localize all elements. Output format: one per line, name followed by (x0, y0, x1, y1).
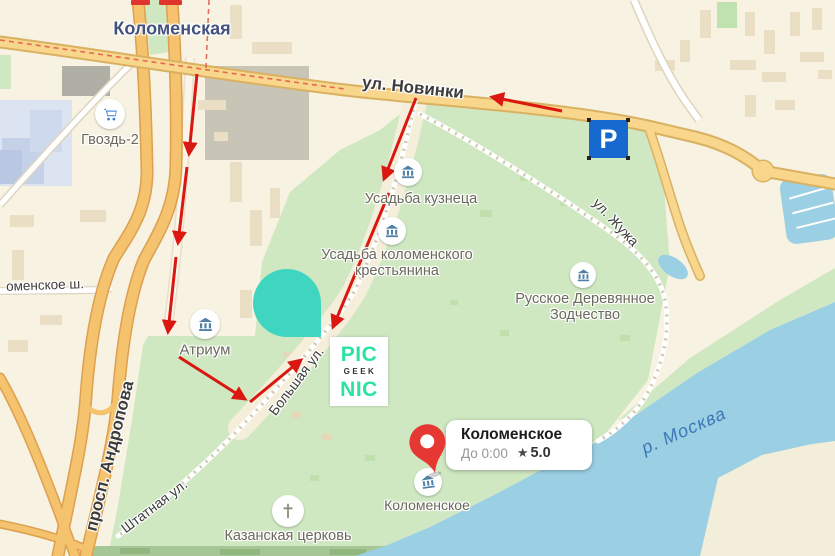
museum-icon[interactable] (394, 158, 422, 186)
rating-value: 5.0 (530, 445, 550, 461)
callout-hours: До 0:00 (461, 446, 508, 461)
logo-text-top: PIC (341, 344, 378, 365)
logo-text-bottom: NIC (340, 379, 378, 400)
church-cross-icon[interactable] (272, 495, 304, 527)
poi-label-usadba-krestyanina[interactable]: Усадьба коломенского крестьянина (300, 247, 495, 279)
callout-rating: ★ 5.0 (517, 445, 551, 461)
map-viewport[interactable]: Коломенская ул. Новинки просп. Андропова… (0, 0, 835, 556)
poi-label-kolomenskoe[interactable]: Коломенское (384, 497, 470, 513)
selection-handle[interactable] (587, 118, 591, 122)
parking-icon[interactable]: P (589, 120, 628, 158)
metro-station-label[interactable]: Коломенская (113, 19, 230, 40)
callout-title[interactable]: Коломенское (461, 425, 584, 444)
selection-handle[interactable] (587, 156, 591, 160)
museum-icon[interactable] (190, 309, 220, 339)
poi-label-russkoe-zodchestvo[interactable]: Русское Деревянное Зодчество (498, 291, 673, 323)
poi-label-kazanskaya[interactable]: Казанская церковь (224, 528, 351, 544)
selection-handle[interactable] (626, 118, 630, 122)
museum-icon[interactable] (378, 217, 406, 245)
logo-text-middle: GEEK (344, 368, 377, 376)
picnic-logo: PIC GEEK NIC (330, 337, 388, 406)
museum-icon[interactable] (570, 262, 596, 288)
shopping-cart-icon[interactable] (95, 99, 125, 129)
street-label-kolomenskoe-highway: оменское ш. (6, 276, 84, 294)
poi-label-gvozd[interactable]: Гвоздь-2 (81, 132, 139, 148)
poi-label-atrium[interactable]: Атриум (180, 342, 231, 359)
star-icon: ★ (517, 445, 529, 461)
place-callout[interactable]: Коломенское До 0:00 ★ 5.0 (446, 420, 592, 470)
selection-handle[interactable] (626, 156, 630, 160)
poi-label-usadba-kuznetsa[interactable]: Усадьба кузнеца (365, 191, 477, 207)
